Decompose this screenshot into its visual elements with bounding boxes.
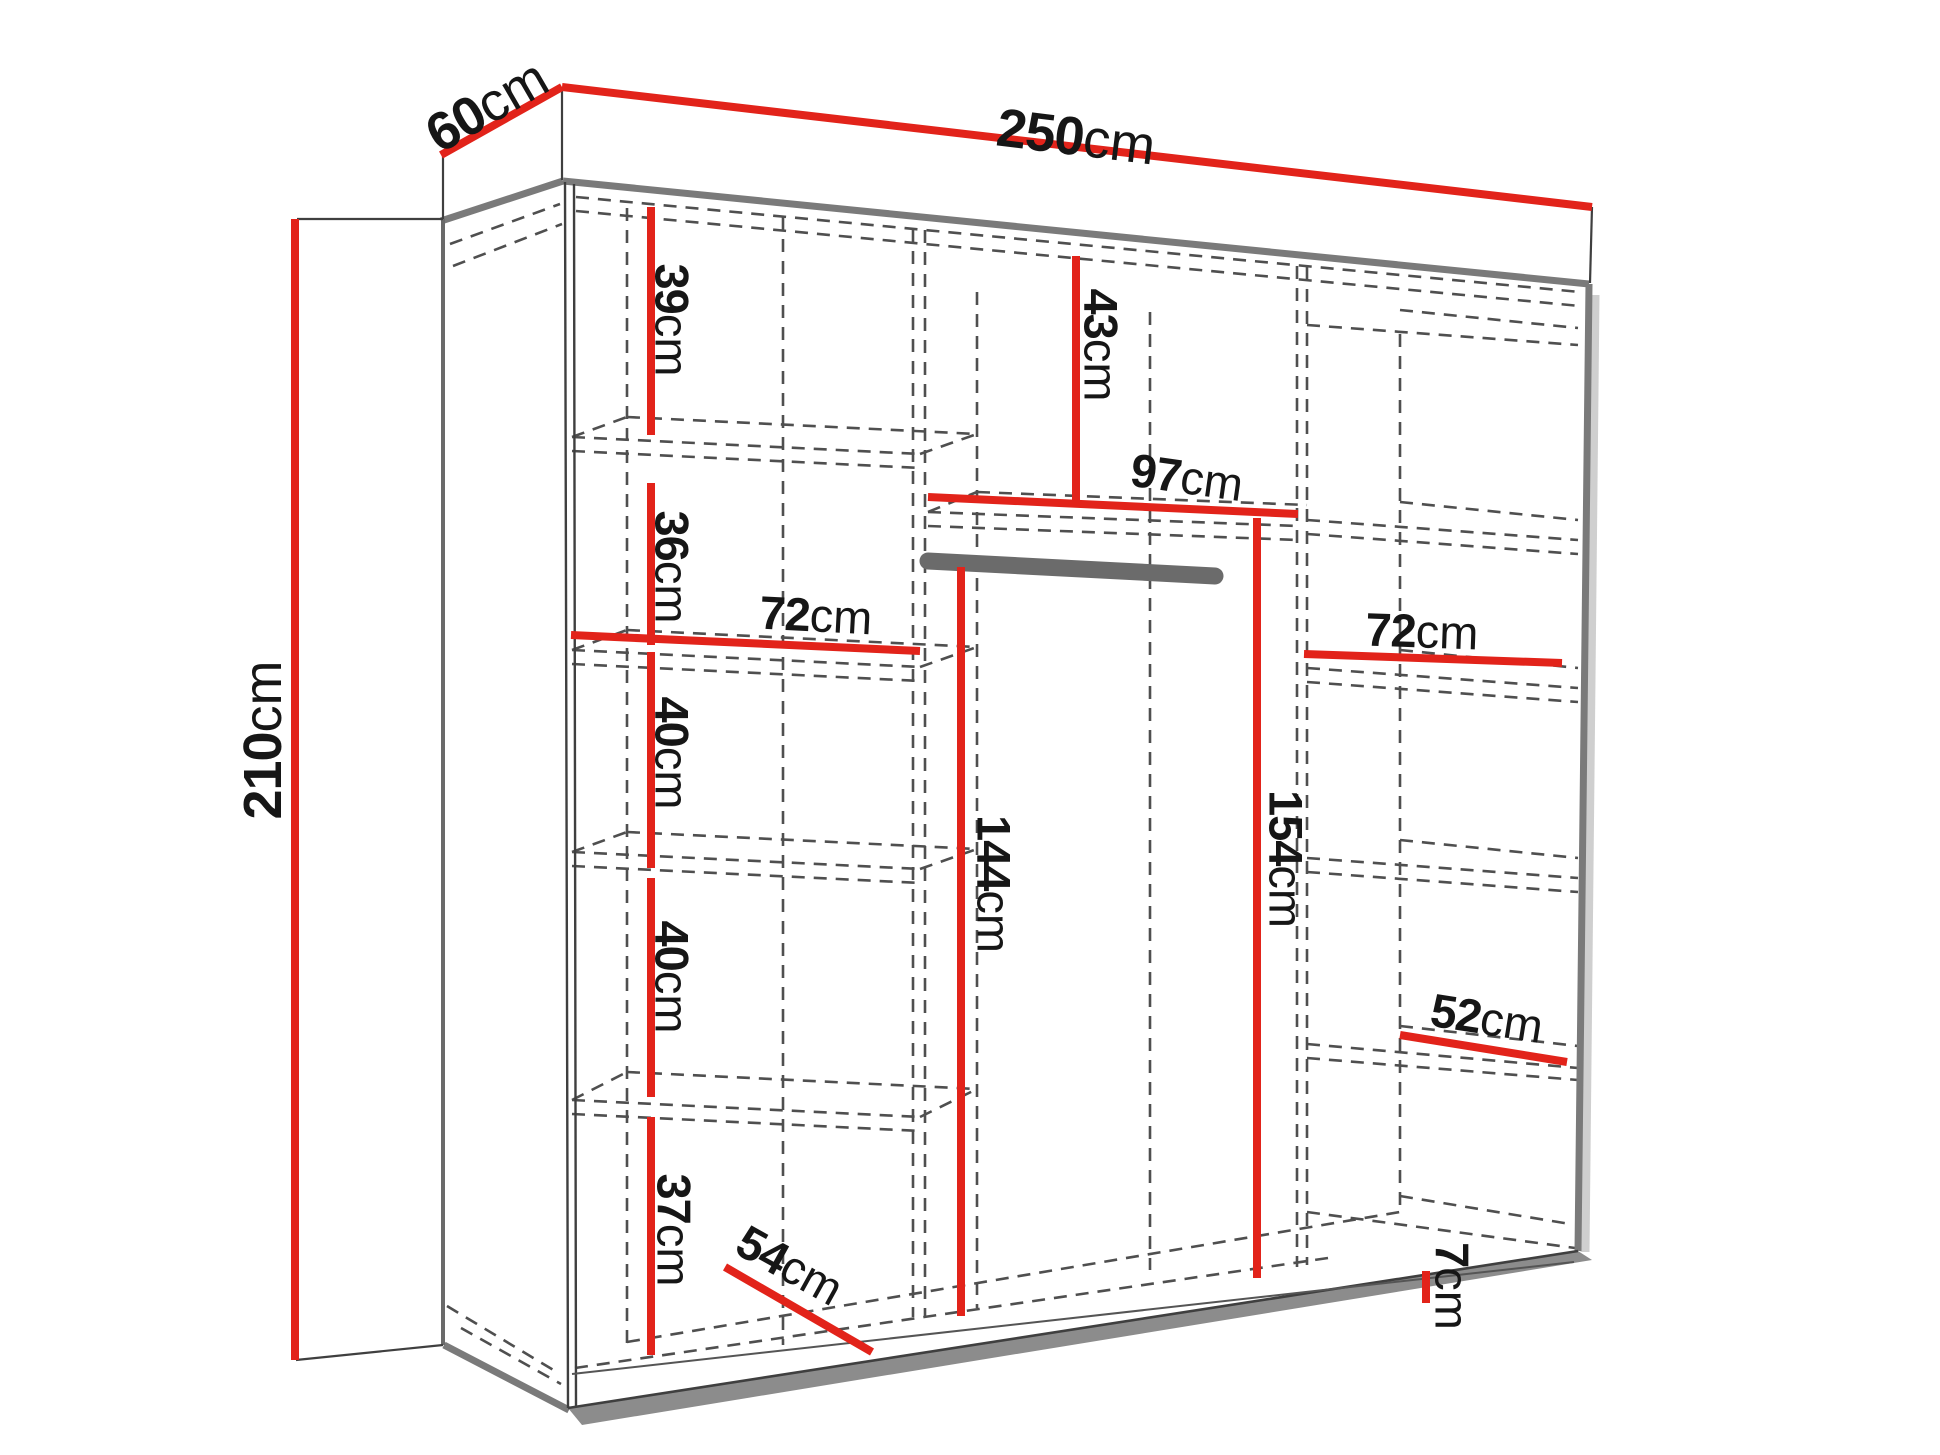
hang144-unit: cm xyxy=(968,890,1021,953)
mid97-value: 97 xyxy=(1127,443,1184,502)
shelf36-label: 36cm xyxy=(649,511,696,624)
dim-line-97 xyxy=(928,497,1298,514)
shelf36-unit: cm xyxy=(646,561,699,624)
left72-label: 72cm xyxy=(758,589,873,642)
top43-unit: cm xyxy=(1075,339,1128,402)
plinth7-unit: cm xyxy=(1426,1267,1479,1330)
interior-dashed-lines xyxy=(447,197,1580,1384)
hang144-value: 144 xyxy=(968,815,1021,890)
width-value: 250 xyxy=(993,98,1087,168)
shelf39-value: 39 xyxy=(646,264,699,314)
shelf40a-value: 40 xyxy=(646,697,699,747)
shelf37-unit: cm xyxy=(648,1224,701,1287)
shelf52-value: 52 xyxy=(1427,983,1485,1043)
left72-value: 72 xyxy=(758,586,811,642)
shelf40a-unit: cm xyxy=(646,747,699,810)
shelf39-label: 39cm xyxy=(649,264,696,377)
height-unit: cm xyxy=(233,660,293,732)
height-value: 210 xyxy=(233,732,293,819)
shelf52-unit: cm xyxy=(1477,991,1547,1053)
mid97-unit: cm xyxy=(1177,450,1246,511)
wardrobe-dimension-diagram: 60cm 250cm 210cm 39cm 36cm 40cm 40cm 37c… xyxy=(0,0,1940,1455)
width-unit: cm xyxy=(1080,108,1159,176)
shelf37-value: 37 xyxy=(648,1174,701,1224)
right72-value: 72 xyxy=(1365,603,1417,658)
hanging-rail xyxy=(928,561,1215,576)
hang154-label: 154cm xyxy=(1263,790,1310,928)
hang154-value: 154 xyxy=(1260,790,1313,865)
plinth7-label: 7cm xyxy=(1429,1242,1476,1330)
shelf37-label: 37cm xyxy=(651,1174,698,1287)
right72-label: 72cm xyxy=(1365,606,1480,657)
top43-value: 43 xyxy=(1075,289,1128,339)
shelf36-value: 36 xyxy=(646,511,699,561)
shelf39-unit: cm xyxy=(646,314,699,377)
shelf40a-label: 40cm xyxy=(649,697,696,810)
top43-label: 43cm xyxy=(1078,289,1125,402)
left72-unit: cm xyxy=(808,588,873,644)
hang144-label: 144cm xyxy=(971,815,1018,953)
shelf40b-value: 40 xyxy=(646,921,699,971)
height-label: 210cm xyxy=(236,660,290,819)
dimension-extension-lines xyxy=(296,87,1592,1360)
right72-unit: cm xyxy=(1415,604,1479,659)
dimension-red-lines xyxy=(295,87,1592,1360)
plinth7-value: 7 xyxy=(1426,1242,1479,1267)
shelf40b-label: 40cm xyxy=(649,921,696,1034)
hang154-unit: cm xyxy=(1260,865,1313,928)
shelf40b-unit: cm xyxy=(646,971,699,1034)
